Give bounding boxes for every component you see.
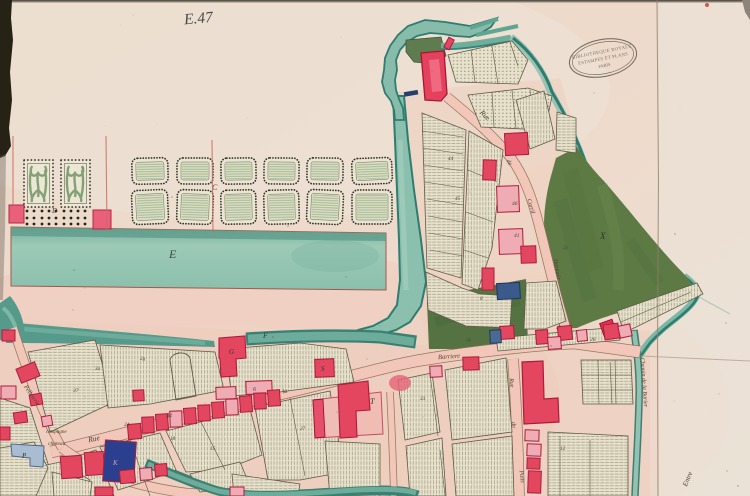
svg-text:K: K [112, 459, 118, 467]
svg-text:E.47: E.47 [182, 9, 214, 29]
svg-text:37: 37 [72, 388, 79, 394]
svg-text:15: 15 [210, 446, 216, 452]
svg-text:E: E [168, 247, 177, 261]
svg-text:3o: 3o [95, 366, 101, 372]
svg-text:18: 18 [170, 436, 176, 442]
svg-text:2y: 2y [466, 337, 472, 343]
svg-text:Rue: Rue [508, 377, 515, 388]
svg-text:33: 33 [420, 396, 426, 402]
svg-text:S: S [321, 365, 325, 373]
svg-text:P: P [21, 452, 27, 460]
svg-text:2y: 2y [563, 245, 569, 251]
svg-text:F: F [262, 331, 268, 340]
svg-text:6: 6 [253, 387, 256, 393]
svg-text:T: T [370, 397, 375, 406]
svg-text:chateau: chateau [48, 441, 66, 447]
svg-text:44: 44 [448, 155, 454, 162]
svg-text:G: G [229, 348, 234, 356]
svg-text:41: 41 [514, 232, 520, 239]
svg-text:46: 46 [512, 200, 518, 207]
svg-text:12: 12 [560, 446, 566, 452]
svg-text:X: X [599, 231, 606, 241]
svg-text:24: 24 [124, 421, 130, 428]
svg-text:D: D [51, 207, 57, 215]
svg-text:2g: 2g [140, 356, 146, 362]
svg-text:campagne: campagne [46, 430, 67, 435]
svg-text:du: du [510, 422, 517, 429]
svg-text:45: 45 [455, 195, 461, 202]
svg-text:26: 26 [590, 337, 596, 343]
svg-text:8: 8 [480, 296, 483, 302]
svg-text:27: 27 [300, 426, 306, 432]
